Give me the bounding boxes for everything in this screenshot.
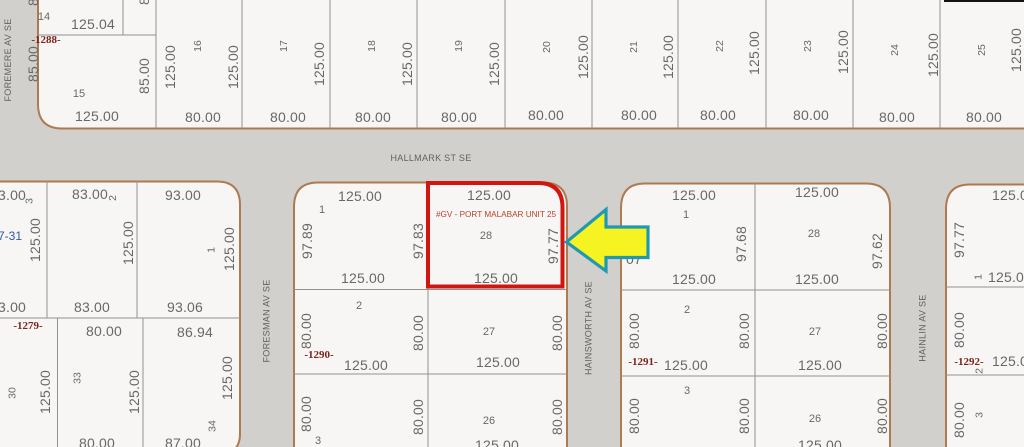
svg-text:8: 8 <box>136 0 152 5</box>
svg-text:125.00: 125.00 <box>120 221 136 265</box>
svg-text:83.00: 83.00 <box>74 299 110 315</box>
svg-text:1: 1 <box>206 247 218 253</box>
svg-text:87.00: 87.00 <box>165 435 201 447</box>
svg-text:80.00: 80.00 <box>270 109 306 125</box>
svg-text:80.00: 80.00 <box>355 109 391 125</box>
svg-text:125.00: 125.00 <box>746 31 762 75</box>
svg-text:#GV - PORT MALABAR UNIT 25: #GV - PORT MALABAR UNIT 25 <box>436 210 557 219</box>
svg-text:125.04: 125.04 <box>71 16 115 32</box>
svg-text:80.00: 80.00 <box>298 396 314 432</box>
svg-text:125.00: 125.00 <box>476 354 520 370</box>
svg-text:125.00: 125.00 <box>344 357 388 373</box>
svg-text:125.00: 125.00 <box>992 353 1024 369</box>
svg-text:125.00: 125.00 <box>341 270 385 286</box>
svg-text:125.00: 125.00 <box>798 357 842 373</box>
svg-text:-1279-: -1279- <box>13 320 43 332</box>
svg-text:125.00: 125.00 <box>474 270 518 286</box>
svg-text:19: 19 <box>453 40 465 52</box>
svg-text:28: 28 <box>480 230 492 242</box>
svg-text:25: 25 <box>976 44 988 56</box>
svg-text:125.00: 125.00 <box>660 35 676 79</box>
svg-text:125.00: 125.00 <box>988 269 1024 285</box>
svg-text:85.00: 85.00 <box>136 58 152 94</box>
svg-text:125.00: 125.00 <box>338 188 382 204</box>
svg-text:97.89: 97.89 <box>299 223 315 259</box>
svg-text:125.00: 125.00 <box>221 227 237 271</box>
svg-text:HALLMARK ST SE: HALLMARK ST SE <box>390 153 471 163</box>
svg-text:80.00: 80.00 <box>966 109 1002 125</box>
svg-text:2: 2 <box>684 304 690 316</box>
svg-text:80.00: 80.00 <box>793 107 829 123</box>
svg-text:125.00: 125.00 <box>75 108 119 124</box>
svg-text:80.00: 80.00 <box>626 313 642 349</box>
svg-text:97.68: 97.68 <box>733 226 749 262</box>
svg-text:17: 17 <box>278 40 290 52</box>
svg-text:125.00: 125.00 <box>399 42 415 86</box>
svg-text:125.00: 125.00 <box>311 42 327 86</box>
svg-text:93.06: 93.06 <box>167 299 203 315</box>
svg-text:125.00: 125.00 <box>575 35 591 79</box>
svg-text:125.00: 125.00 <box>225 45 241 89</box>
svg-text:80.00: 80.00 <box>185 109 221 125</box>
svg-text:24: 24 <box>889 44 901 56</box>
svg-text:FORESMAN AV SE: FORESMAN AV SE <box>262 279 272 362</box>
svg-text:85.00: 85.00 <box>25 46 41 82</box>
svg-text:20: 20 <box>541 41 553 53</box>
svg-text:125.00: 125.00 <box>126 370 142 414</box>
svg-text:125.00: 125.00 <box>219 356 235 400</box>
svg-text:23: 23 <box>802 40 814 52</box>
svg-text:34: 34 <box>207 420 219 432</box>
svg-text:80.00: 80.00 <box>951 312 967 348</box>
svg-text:HAINSWORTH AV SE: HAINSWORTH AV SE <box>584 281 594 375</box>
svg-text:2: 2 <box>107 195 119 201</box>
svg-text:125.00: 125.00 <box>835 30 851 74</box>
svg-text:33: 33 <box>72 372 84 384</box>
svg-text:28: 28 <box>808 228 820 240</box>
svg-text:125.00: 125.00 <box>992 187 1024 203</box>
svg-text:80.00: 80.00 <box>86 323 122 339</box>
svg-text:80.00: 80.00 <box>298 313 314 349</box>
svg-text:3: 3 <box>315 435 321 447</box>
svg-text:93.00: 93.00 <box>165 187 201 203</box>
svg-text:14: 14 <box>38 11 50 23</box>
svg-text:125.00: 125.00 <box>486 42 502 86</box>
svg-text:125.00: 125.00 <box>925 33 941 77</box>
svg-text:HAINLIN AV SE: HAINLIN AV SE <box>918 294 928 361</box>
svg-text:125.00: 125.00 <box>672 271 716 287</box>
svg-text:86.94: 86.94 <box>177 324 213 340</box>
svg-text:27: 27 <box>809 326 821 338</box>
svg-text:80.00: 80.00 <box>79 435 115 447</box>
svg-text:125.00: 125.00 <box>672 187 716 203</box>
svg-text:3.00: 3.00 <box>0 299 26 315</box>
svg-text:1: 1 <box>683 209 689 221</box>
svg-text:80.00: 80.00 <box>736 398 752 434</box>
svg-text:97.77: 97.77 <box>951 222 967 258</box>
svg-text:80.00: 80.00 <box>621 107 657 123</box>
svg-text:18: 18 <box>366 40 378 52</box>
svg-text:80.00: 80.00 <box>736 313 752 349</box>
svg-text:-1291-: -1291- <box>628 356 658 368</box>
svg-text:80.00: 80.00 <box>528 107 564 123</box>
svg-text:125.00: 125.00 <box>162 45 178 89</box>
svg-text:80.00: 80.00 <box>879 109 915 125</box>
svg-text:-1290-: -1290- <box>304 349 334 361</box>
svg-text:125.00: 125.00 <box>1008 28 1024 72</box>
svg-text:8: 8 <box>25 0 41 6</box>
svg-text:7-31: 7-31 <box>0 229 22 243</box>
svg-text:3: 3 <box>684 385 690 397</box>
svg-text:125.00: 125.00 <box>475 437 519 447</box>
svg-text:80.00: 80.00 <box>410 315 426 351</box>
svg-text:-1292-: -1292- <box>954 356 984 368</box>
svg-text:26: 26 <box>483 415 495 427</box>
svg-text:30: 30 <box>7 387 19 399</box>
svg-text:3: 3 <box>974 412 986 418</box>
svg-text:80.00: 80.00 <box>549 399 565 435</box>
svg-text:125.00: 125.00 <box>798 437 842 447</box>
svg-text:22: 22 <box>714 40 726 52</box>
svg-text:125.00: 125.00 <box>27 218 43 262</box>
svg-text:80.00: 80.00 <box>626 398 642 434</box>
svg-text:21: 21 <box>628 41 640 53</box>
svg-text:80.00: 80.00 <box>874 398 890 434</box>
svg-text:16: 16 <box>192 40 204 52</box>
svg-text:80.00: 80.00 <box>951 402 967 438</box>
svg-text:15: 15 <box>73 88 85 100</box>
svg-text:3.00: 3.00 <box>0 187 26 203</box>
svg-text:125.00: 125.00 <box>795 271 839 287</box>
svg-text:1: 1 <box>973 274 985 280</box>
svg-text:80.00: 80.00 <box>410 399 426 435</box>
svg-text:-1288-: -1288- <box>31 34 61 46</box>
svg-text:27: 27 <box>483 326 495 338</box>
svg-text:80.00: 80.00 <box>441 109 477 125</box>
svg-text:3: 3 <box>24 198 36 204</box>
svg-text:2: 2 <box>974 368 986 374</box>
svg-text:125.00: 125.00 <box>795 184 839 200</box>
svg-text:80.00: 80.00 <box>874 313 890 349</box>
svg-text:97.77: 97.77 <box>545 228 561 264</box>
svg-text:26: 26 <box>809 413 821 425</box>
svg-text:80.00: 80.00 <box>549 315 565 351</box>
svg-text:97.83: 97.83 <box>410 223 426 259</box>
svg-text:80.00: 80.00 <box>700 107 736 123</box>
svg-text:125.00: 125.00 <box>37 370 53 414</box>
svg-text:83.00: 83.00 <box>72 186 108 202</box>
svg-text:125.00: 125.00 <box>664 357 708 373</box>
svg-text:97.62: 97.62 <box>869 233 885 269</box>
svg-text:1: 1 <box>319 204 325 216</box>
svg-text:125.00: 125.00 <box>467 187 511 203</box>
svg-text:FOREMERE AV SE: FOREMERE AV SE <box>3 18 13 101</box>
svg-text:2: 2 <box>356 300 362 312</box>
